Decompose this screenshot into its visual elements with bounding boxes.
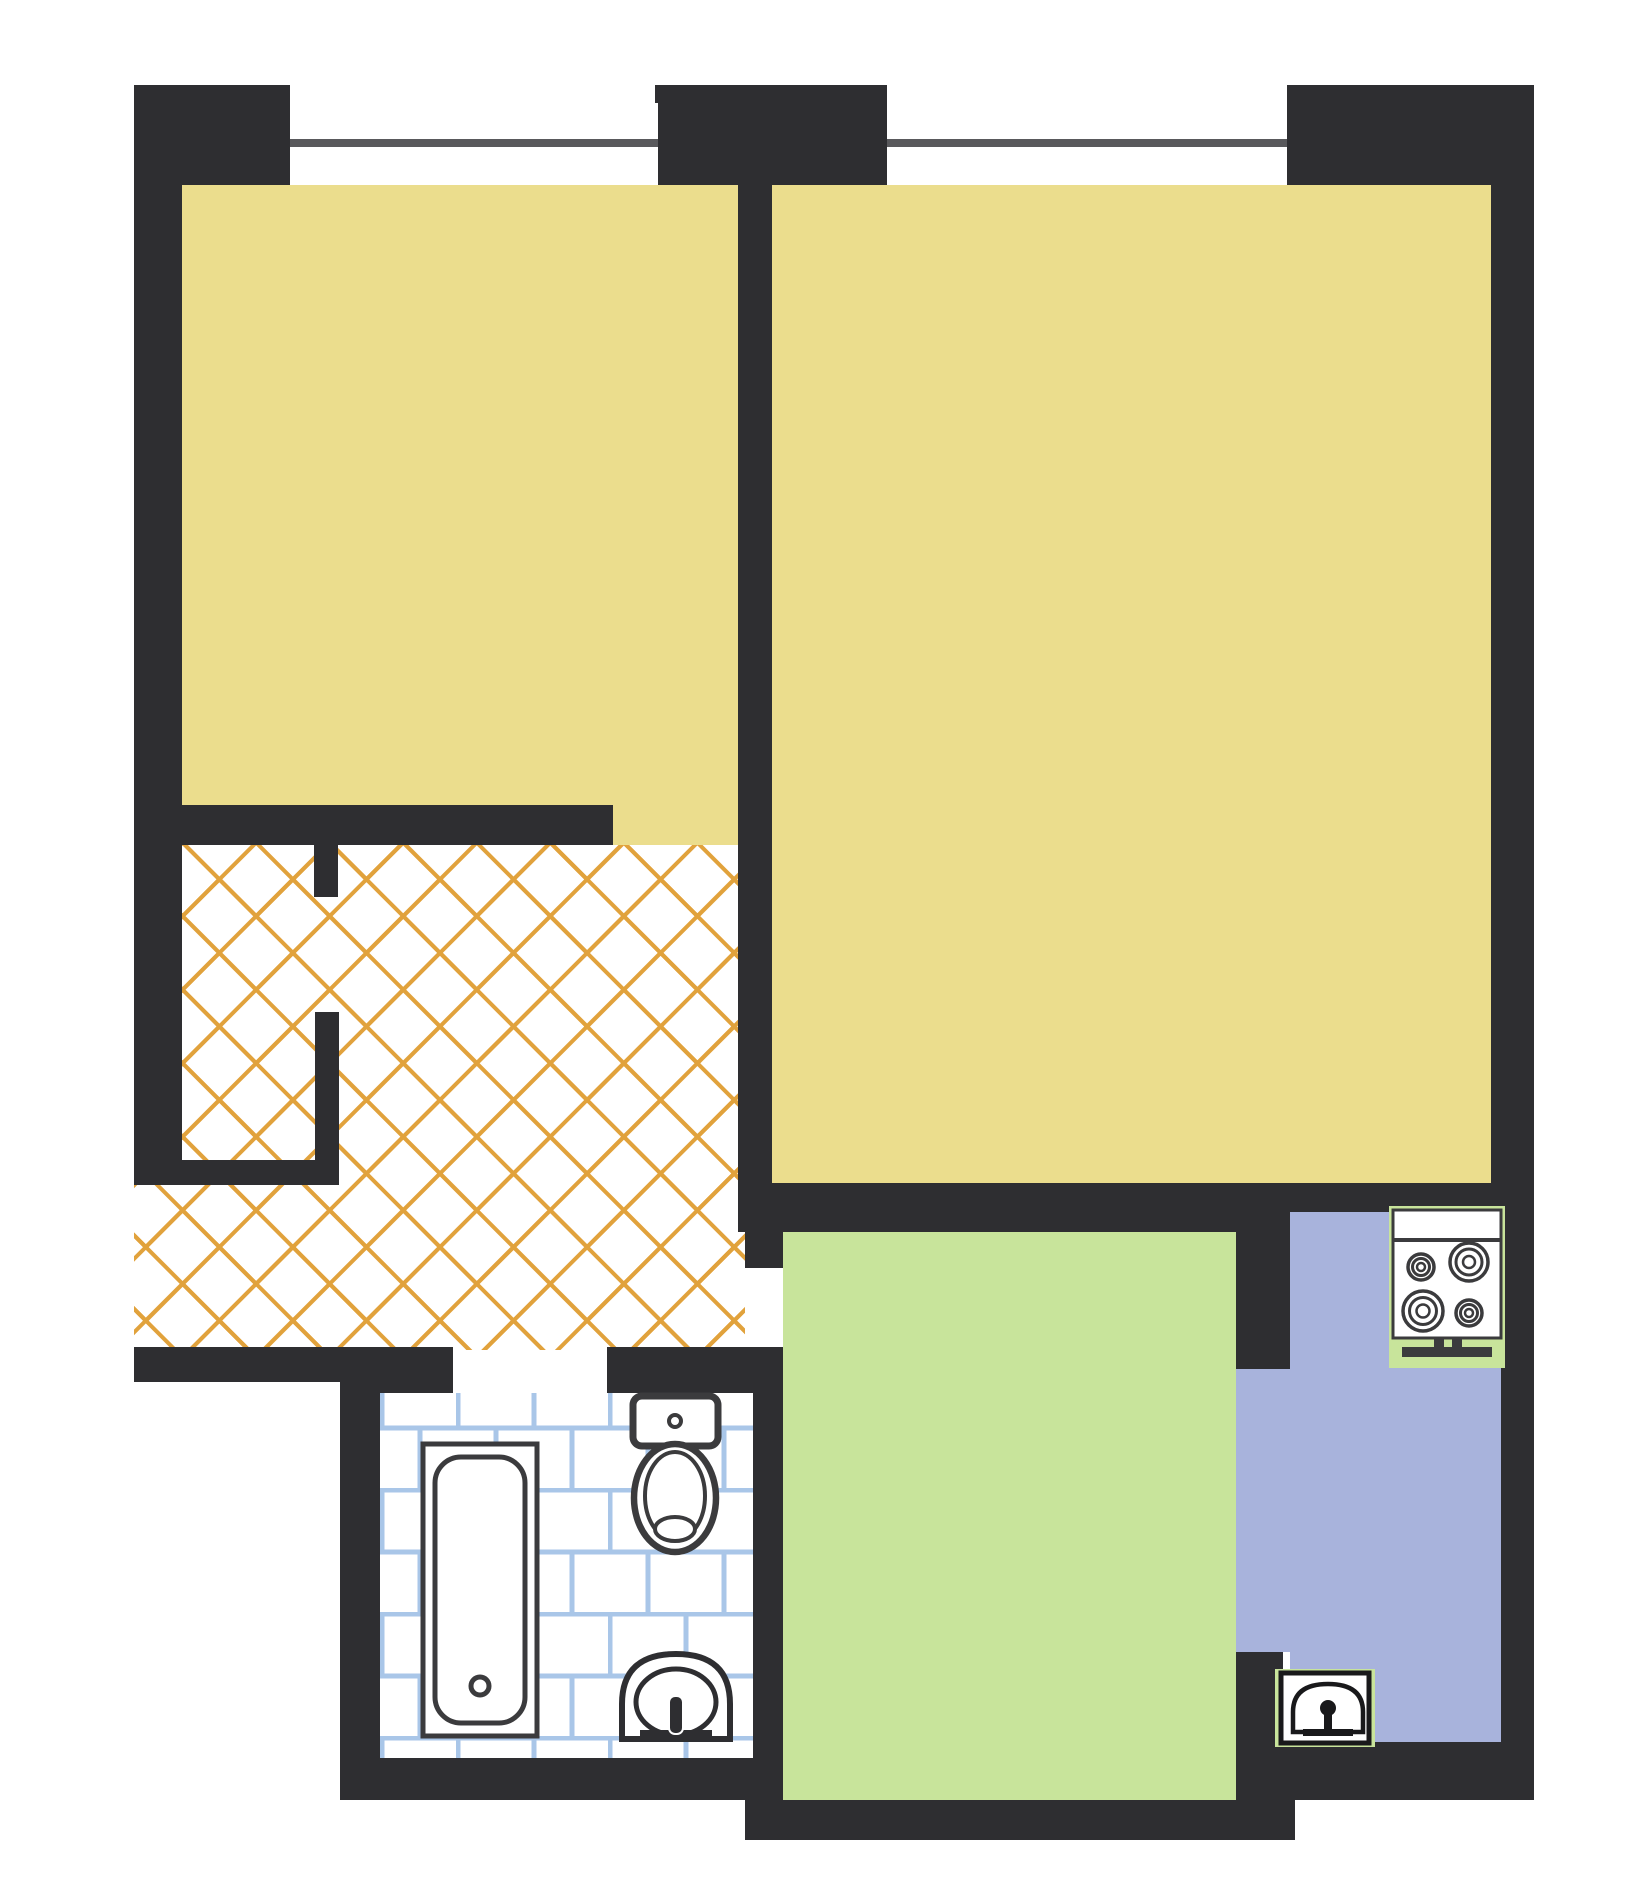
- wall-bath-top-right: [607, 1347, 783, 1393]
- room-living-right: [772, 185, 1491, 1183]
- kitchen-sink-icon: [1275, 1669, 1375, 1747]
- wall-bath-bottom: [340, 1758, 783, 1800]
- stove-icon: [1389, 1206, 1505, 1368]
- wall-green-bottom: [745, 1800, 1295, 1840]
- wall-hall-left-closure: [134, 1347, 347, 1382]
- wall-bath-left: [340, 1347, 380, 1800]
- room-green: [783, 1232, 1236, 1800]
- wall-green-kitchen-top: [1236, 1232, 1290, 1369]
- wall-kitchen-bottom: [1236, 1742, 1534, 1800]
- room-bedroom-left: [182, 185, 738, 805]
- window-right-glass-line: [887, 139, 1287, 147]
- wall-band-under-living: [738, 1183, 1290, 1232]
- wall-closet-bottom: [134, 1160, 339, 1185]
- wall-closet-stub: [314, 845, 338, 897]
- wall-outer-left: [134, 85, 182, 1183]
- wall-bath-right: [753, 1393, 783, 1758]
- wall-green-left-stub: [745, 1232, 783, 1268]
- floorplan: [0, 0, 1649, 1881]
- wall-top-mid-block: [655, 85, 887, 185]
- floorplan-svg: [0, 0, 1649, 1881]
- wall-bedroom-bottom: [134, 805, 613, 845]
- bathroom-sink-icon: [622, 1654, 730, 1739]
- wall-closet-right: [315, 1012, 339, 1185]
- room-floors: [134, 185, 1501, 1800]
- window-left: [290, 103, 658, 185]
- wall-outer-right: [1491, 85, 1534, 1212]
- wall-kitchen-right: [1501, 1212, 1534, 1800]
- toilet-icon: [633, 1396, 718, 1552]
- window-right: [887, 103, 1287, 185]
- bathtub-icon: [423, 1444, 537, 1736]
- window-left-glass-line: [290, 139, 658, 147]
- room-bedroom-left-door-gap: [613, 805, 738, 845]
- wall-room-divider: [738, 185, 772, 1183]
- room-kitchen-door-gap: [1236, 1369, 1290, 1652]
